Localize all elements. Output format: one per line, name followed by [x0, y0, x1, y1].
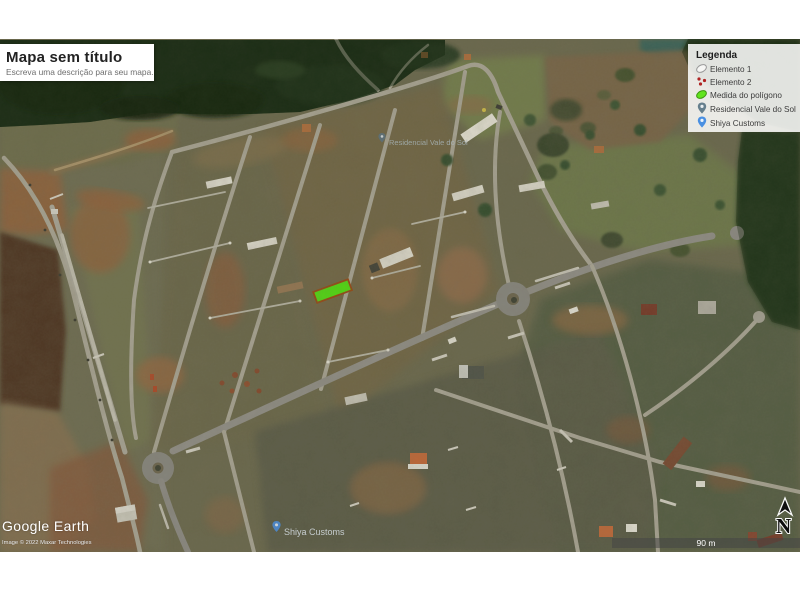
svg-text:N: N: [776, 514, 791, 538]
